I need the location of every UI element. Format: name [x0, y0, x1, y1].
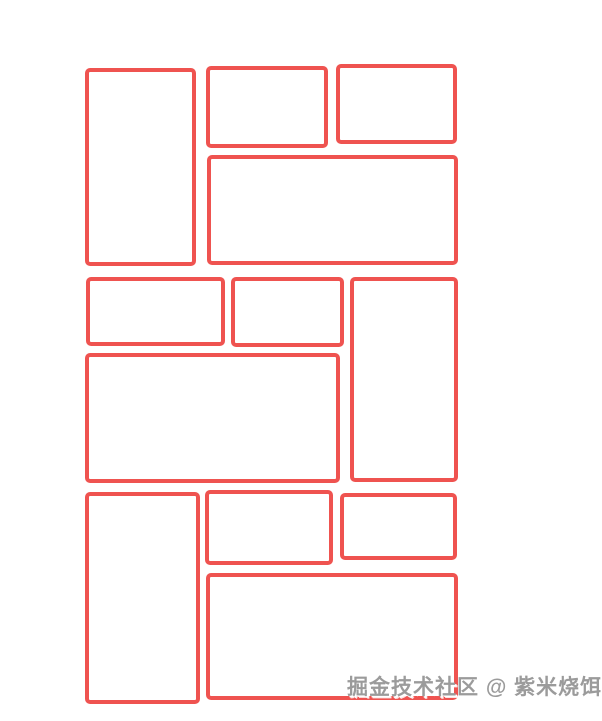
- top-group-small-box-2: [336, 64, 457, 144]
- bottom-group-small-box-1: [205, 490, 333, 565]
- top-group-wide-bottom-box: [207, 155, 458, 265]
- top-group-tall-left-box: [85, 68, 196, 266]
- middle-group-small-box-2: [231, 277, 344, 347]
- top-group-small-box-1: [206, 66, 328, 148]
- middle-group-small-box-1: [86, 277, 225, 346]
- middle-group-wide-bottom-box: [85, 353, 340, 483]
- bottom-group-tall-left-box: [85, 492, 200, 704]
- watermark-text: 掘金技术社区 @ 紫米烧饵块: [347, 671, 602, 701]
- layout-demo-canvas: 掘金技术社区 @ 紫米烧饵块: [0, 0, 602, 721]
- middle-group-tall-right-box: [350, 277, 458, 482]
- bottom-group-small-box-2: [340, 493, 457, 560]
